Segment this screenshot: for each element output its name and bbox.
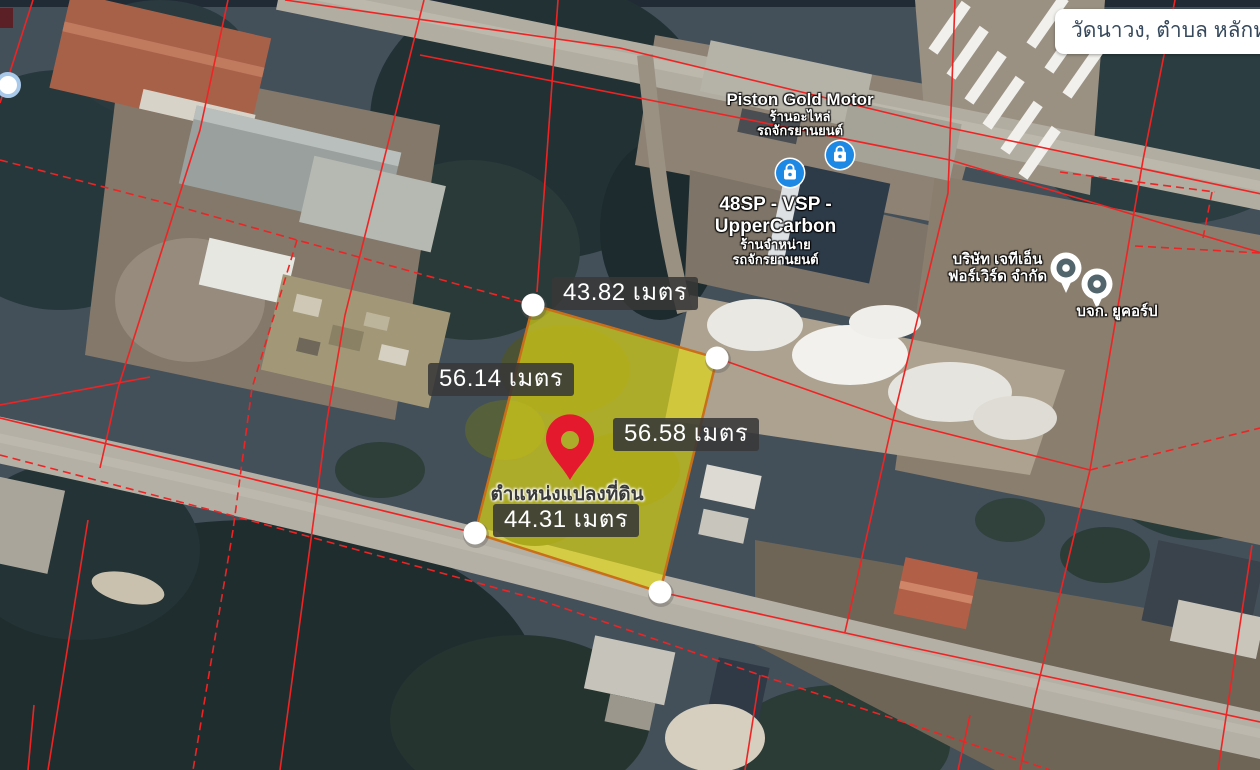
parcel-caption: ตำแหน่งแปลงที่ดิน	[467, 479, 667, 509]
map-viewport[interactable]: วัดนาวง, ตำบล หลักหก 43.82 เมตร 56.14 เม…	[0, 0, 1260, 770]
poi-name: UpperCarbon	[688, 216, 863, 238]
place-info-box: วัดนาวง, ตำบล หลักหก	[1055, 9, 1260, 54]
measurement-label-left: 56.14 เมตร	[428, 363, 574, 396]
poi-name: Piston Gold Motor	[705, 90, 895, 110]
poi-subtitle: ร้านจำหน่าย	[688, 238, 863, 253]
measurement-label-top: 43.82 เมตร	[552, 277, 698, 310]
poi-name: บริษัท เจทีเอ็น	[915, 251, 1080, 268]
poi-name: บจก. ยูคอร์ป	[1052, 303, 1182, 320]
store-icon[interactable]	[775, 158, 806, 189]
poi-label-jtn[interactable]: บริษัท เจทีเอ็น ฟอร์เวิร์ด จำกัด	[915, 251, 1080, 286]
poi-name: ฟอร์เวิร์ด จำกัด	[915, 268, 1080, 285]
poi-name: 48SP - VSP -	[688, 194, 863, 216]
streetview-dot-icon[interactable]	[0, 74, 19, 96]
poi-label-48sp[interactable]: 48SP - VSP - UpperCarbon ร้านจำหน่าย รถจ…	[688, 194, 863, 268]
poi-subtitle: รถจักรยานยนต์	[705, 124, 895, 139]
satellite-map[interactable]	[0, 0, 1260, 770]
poi-label-piston[interactable]: Piston Gold Motor ร้านอะไหล่ รถจักรยานยน…	[705, 90, 895, 139]
poi-subtitle: รถจักรยานยนต์	[688, 253, 863, 268]
measurement-label-right: 56.58 เมตร	[613, 418, 759, 451]
store-icon[interactable]	[825, 140, 856, 171]
poi-label-ucorp[interactable]: บจก. ยูคอร์ป	[1052, 303, 1182, 320]
